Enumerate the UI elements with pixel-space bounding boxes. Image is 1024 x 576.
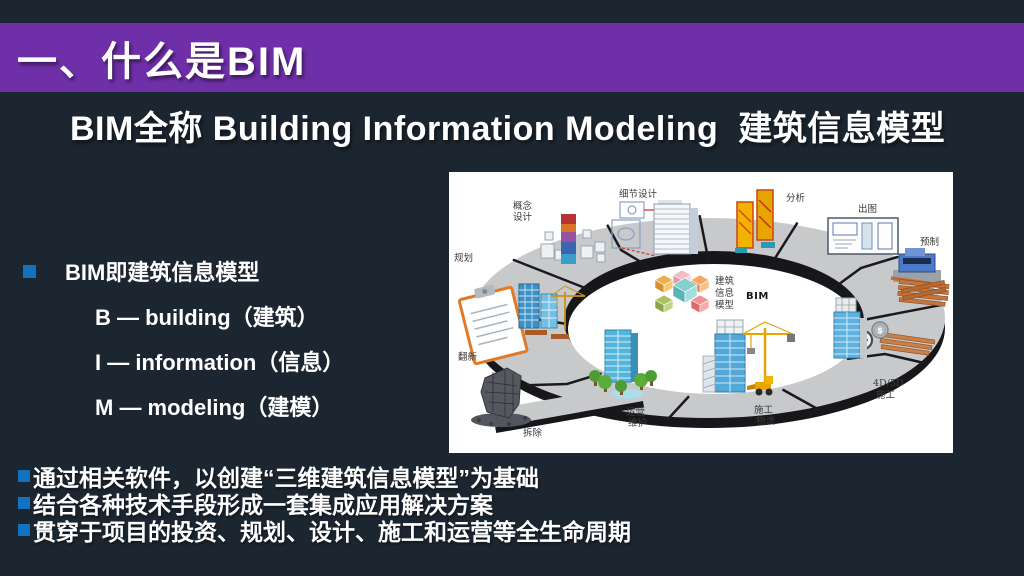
definition-heading: BIM即建筑信息模型 xyxy=(65,255,259,287)
diagram-label-analysis: 分析 xyxy=(786,192,806,204)
definition-item: I — information（信息） xyxy=(95,345,344,377)
floorplan-icon xyxy=(828,218,898,254)
page-title: 一、什么是BIM xyxy=(17,29,306,87)
diagram-label-logistics-2: 物流 xyxy=(756,415,776,427)
dollar-sign: $ xyxy=(877,326,883,335)
diagram-label-concept-2: 设计 xyxy=(513,211,533,223)
definition-block: BIM即建筑信息模型 B — building（建筑） I — informat… xyxy=(23,255,344,422)
bim-lifecycle-svg: $ xyxy=(449,172,953,453)
diagram-label-operation-1: 运营 xyxy=(626,406,645,418)
summary-block: 通过相关软件，以创建“三维建筑信息模型”为基础 结合各种技术手段形成一套集成应用… xyxy=(18,462,631,543)
definition-heading-row: BIM即建筑信息模型 xyxy=(23,255,344,287)
square-bullet-icon xyxy=(18,524,30,536)
diagram-label-planning: 规划 xyxy=(454,252,473,264)
definition-item: M — modeling（建模） xyxy=(95,390,344,422)
diagram-center-bim: BIM xyxy=(746,291,769,302)
square-bullet-icon xyxy=(18,497,30,509)
diagram-label-operation-2: 维护 xyxy=(628,417,647,429)
diagram-label-demolition: 拆除 xyxy=(523,427,543,439)
definition-item: B — building（建筑） xyxy=(95,300,344,332)
summary-text: 贯穿于项目的投资、规划、设计、施工和运营等全生命周期 xyxy=(33,513,631,547)
bim-lifecycle-image: $ xyxy=(449,172,953,453)
diagram-label-concept-1: 概念 xyxy=(513,200,533,212)
square-bullet-icon xyxy=(23,265,36,278)
diagram-label-4d5d-2: 施工 xyxy=(876,389,896,401)
slide-subtitle: BIM全称 Building Information Modeling 建筑信息… xyxy=(70,101,945,150)
diagram-center-label-3: 模型 xyxy=(715,299,735,311)
slide-root: 一、什么是BIM BIM全称 Building Information Mode… xyxy=(0,0,1024,576)
diagram-label-documentation: 出图 xyxy=(858,203,877,215)
detail-tower-icon xyxy=(654,200,698,254)
dollar-coin-icon: $ xyxy=(872,322,888,338)
diagram-label-renovation: 翻新 xyxy=(458,351,478,363)
diagram-label-prefabrication: 预制 xyxy=(920,236,939,248)
diagram-label-4d5d-1: 4D/5D xyxy=(873,378,904,389)
summary-line: 贯穿于项目的投资、规划、设计、施工和运营等全生命周期 xyxy=(18,516,631,543)
square-bullet-icon xyxy=(18,470,30,482)
diagram-center-label-2: 信息 xyxy=(715,287,734,299)
diagram-label-logistics-1: 施工 xyxy=(754,404,774,416)
diagram-center-label-1: 建筑 xyxy=(715,275,735,287)
title-bar: 一、什么是BIM xyxy=(0,23,1024,92)
diagram-label-detail-design: 细节设计 xyxy=(619,188,658,200)
